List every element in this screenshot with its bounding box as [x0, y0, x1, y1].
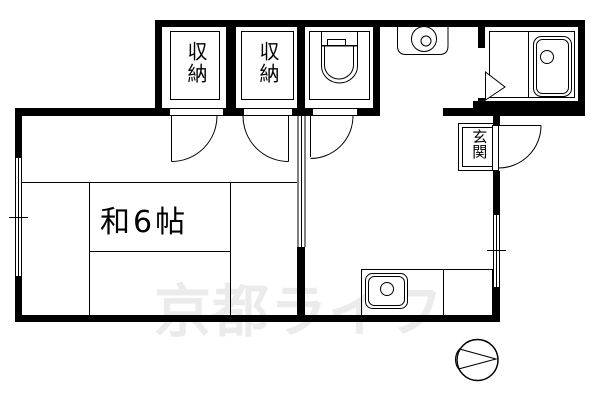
- washing-machine-pan-icon: [398, 27, 449, 55]
- toilet-door: [311, 116, 354, 159]
- window-left: [9, 158, 28, 276]
- floorplan-linework: [0, 0, 600, 400]
- door-thresholds: [170, 109, 357, 116]
- entrance-door: [493, 126, 542, 171]
- closet-left-label: 収納: [184, 41, 208, 85]
- bathroom-folding-door-icon: [486, 72, 506, 100]
- closet-right-label: 収納: [256, 41, 280, 85]
- closet-left-door: [172, 116, 218, 162]
- toilet-room-area: [310, 32, 370, 100]
- kitchen-sink-icon: [366, 274, 408, 309]
- sliding-door: [298, 116, 305, 247]
- bathtub-icon: [534, 37, 572, 97]
- window-right: [487, 215, 506, 287]
- floorplan: 京都ライフ: [0, 0, 600, 400]
- toilet-icon: [322, 32, 358, 84]
- entrance-label: 玄関: [470, 129, 487, 159]
- tatami-room-label: 和6帖: [100, 197, 188, 241]
- closet-right-door: [243, 116, 289, 162]
- compass-north-arrow-icon: [455, 340, 498, 381]
